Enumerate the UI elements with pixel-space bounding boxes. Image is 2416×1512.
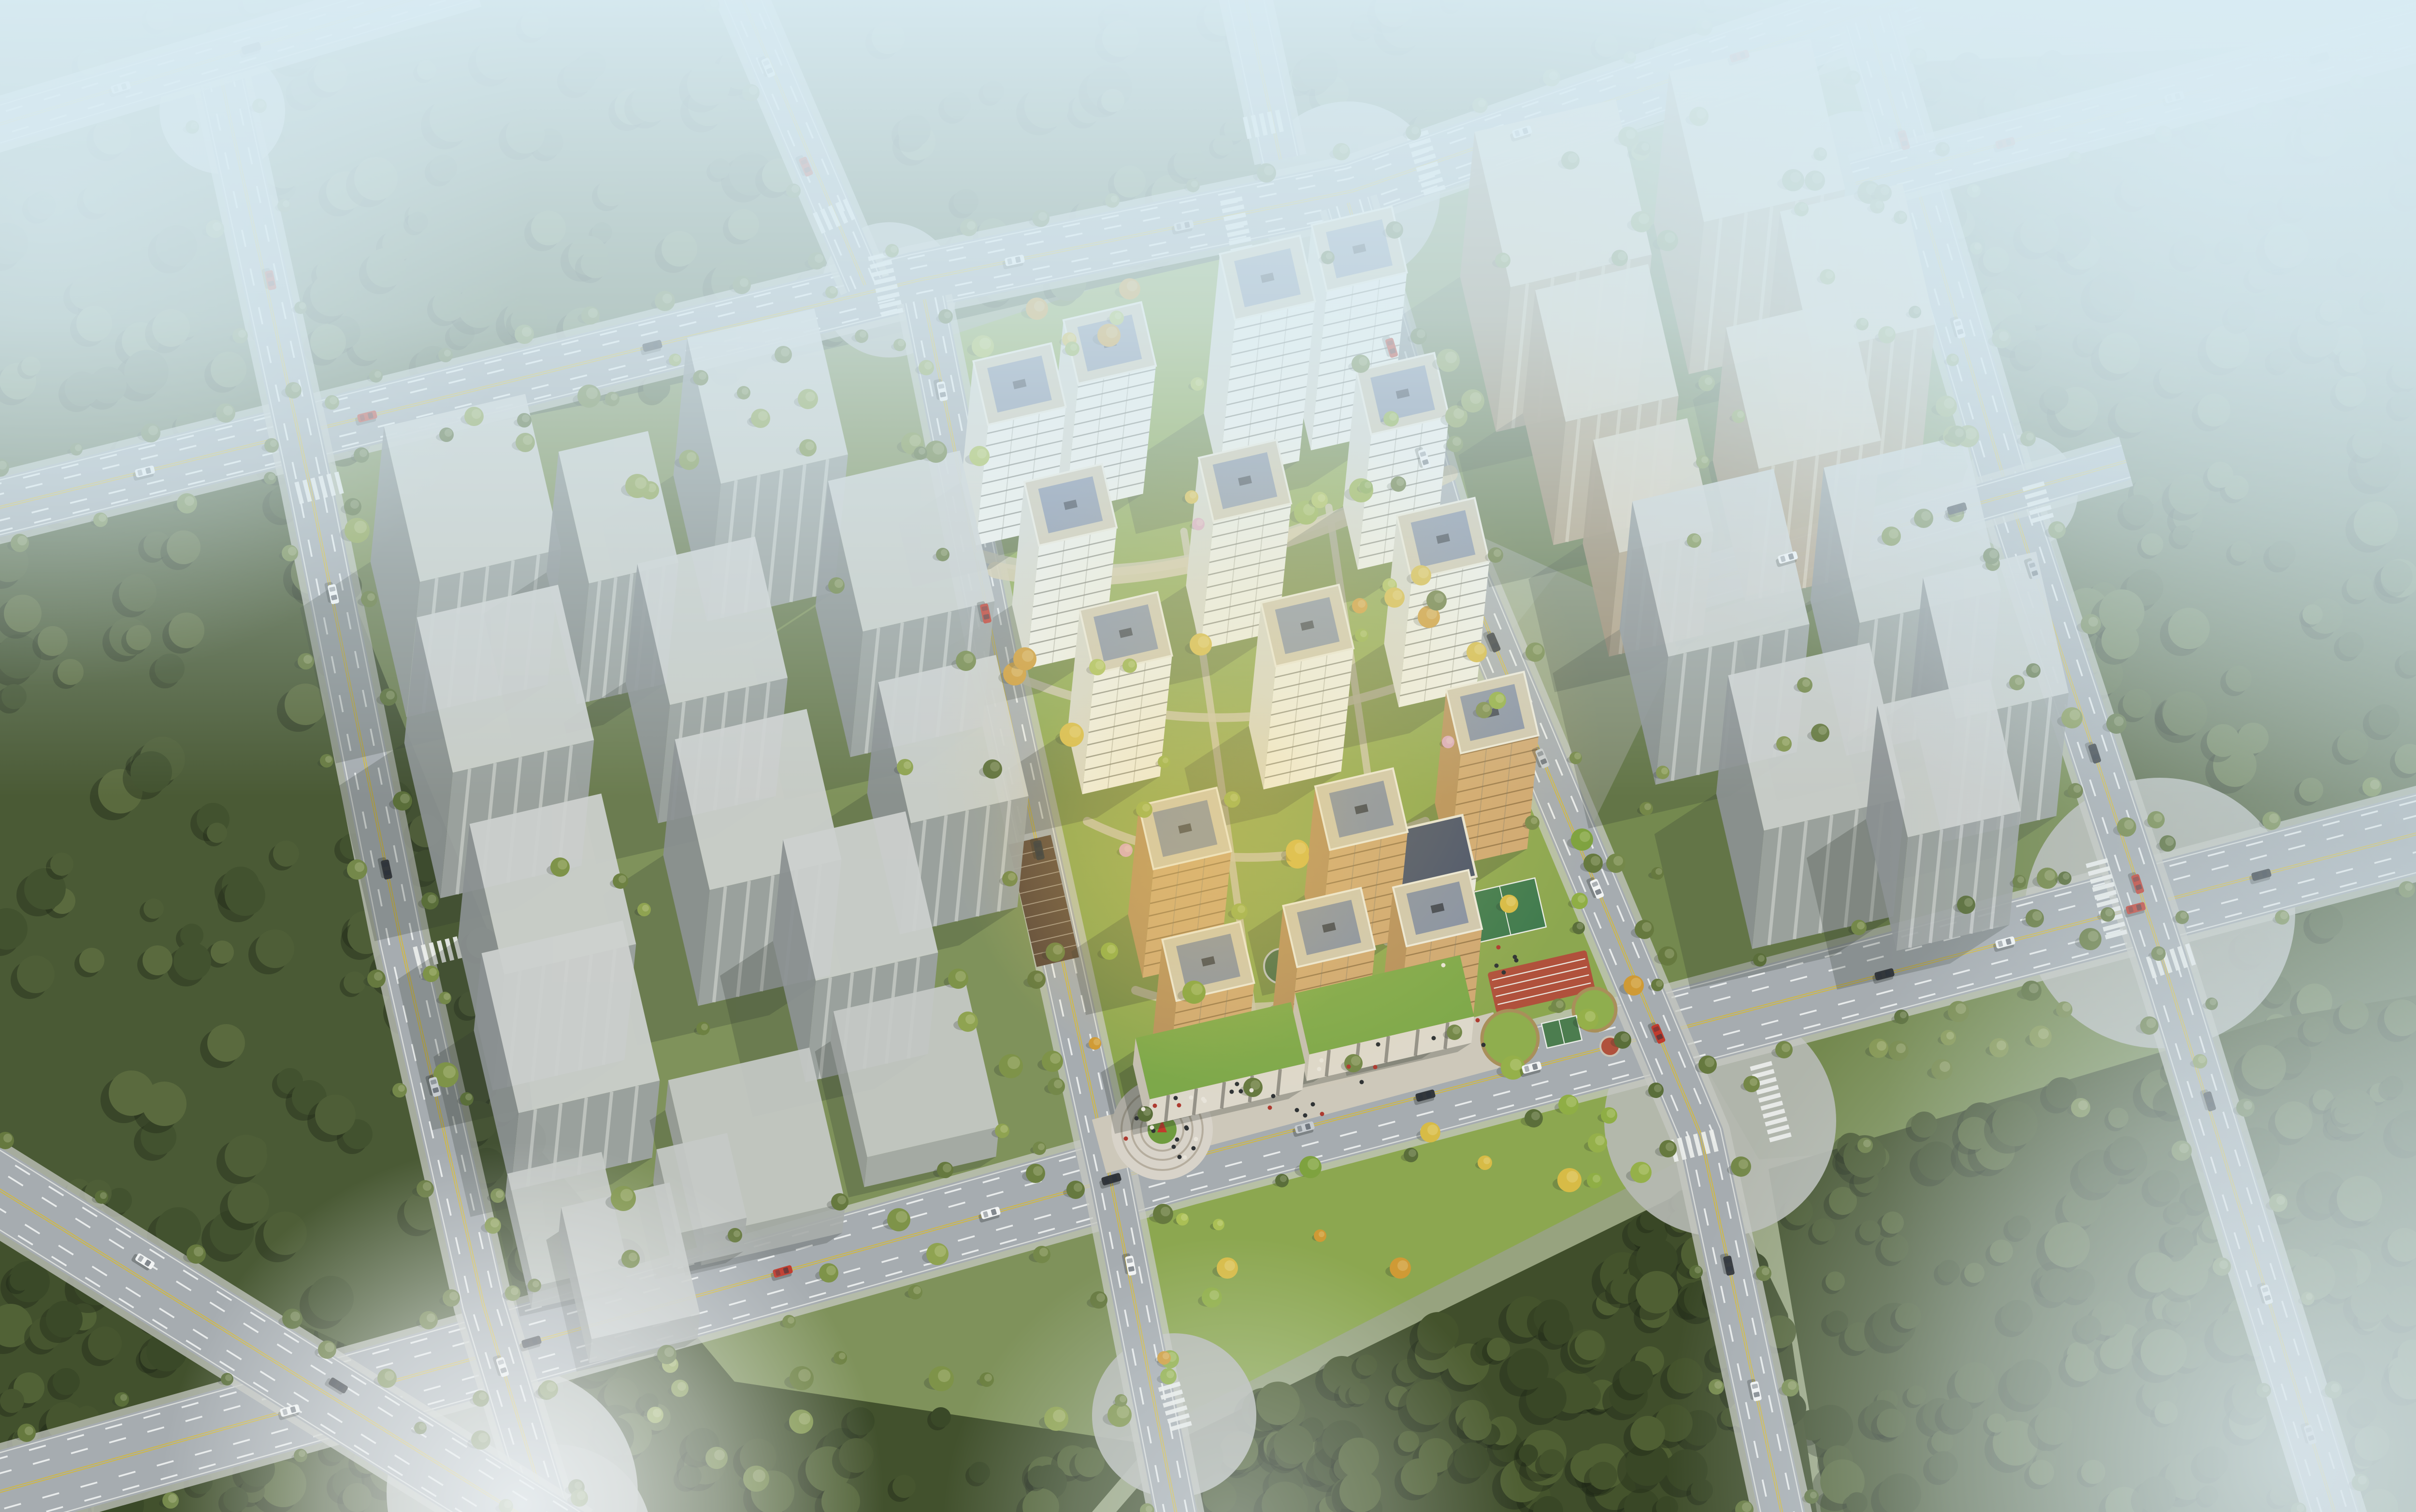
masterplan-aerial-rendering <box>0 0 2416 1512</box>
fog-overlay <box>0 0 2416 1512</box>
aerial-render-viewport <box>0 0 2416 1512</box>
